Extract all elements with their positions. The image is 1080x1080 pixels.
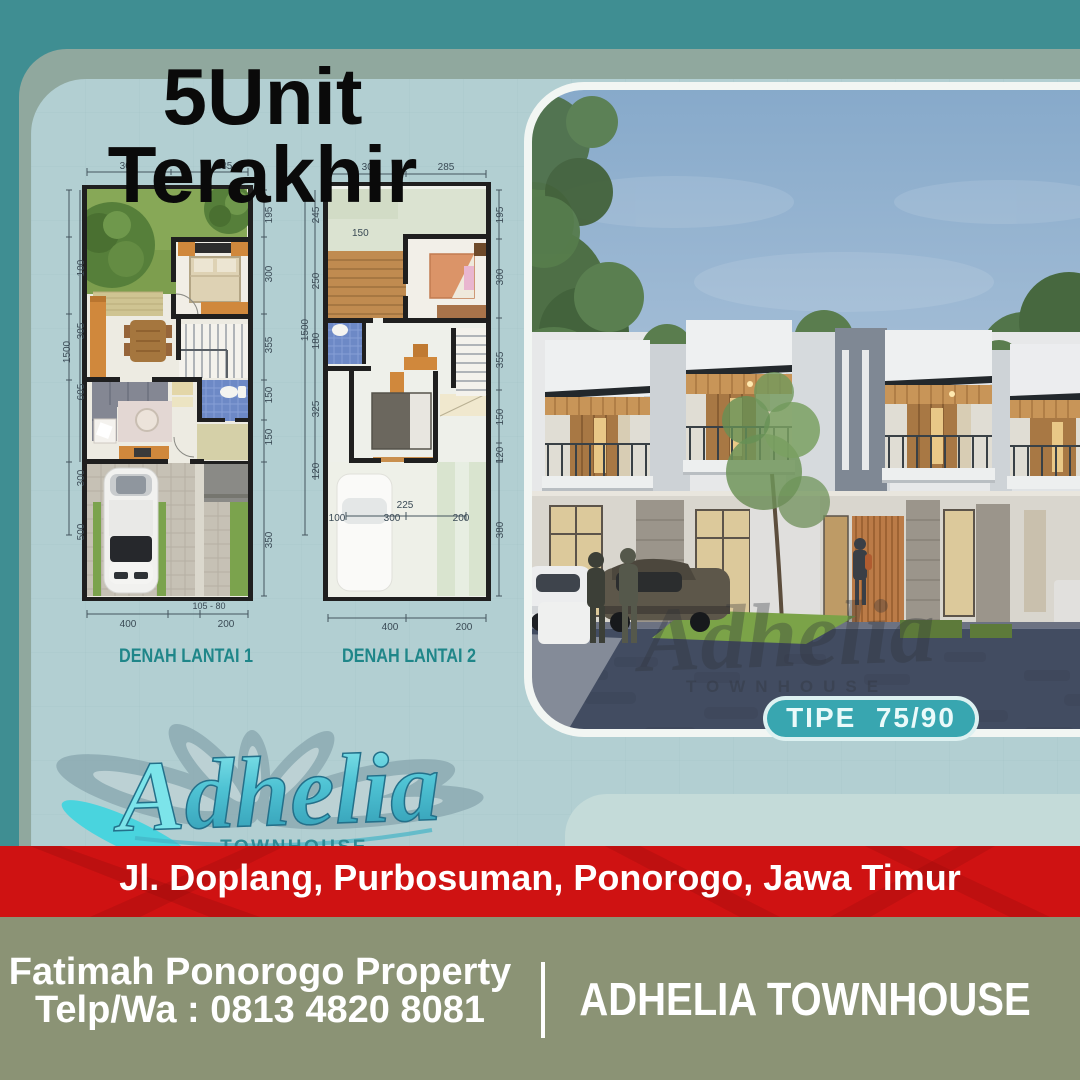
svg-text:605: 605 — [76, 383, 87, 400]
svg-text:400: 400 — [120, 619, 137, 630]
svg-text:200: 200 — [456, 622, 473, 633]
svg-text:1500: 1500 — [300, 318, 311, 341]
svg-text:380: 380 — [495, 521, 506, 538]
svg-text:Adhelia: Adhelia — [632, 579, 937, 691]
svg-text:300: 300 — [384, 513, 401, 524]
svg-text:180: 180 — [311, 332, 322, 349]
svg-text:400: 400 — [382, 622, 399, 633]
svg-text:300: 300 — [76, 469, 87, 486]
svg-text:1500: 1500 — [62, 340, 73, 363]
svg-text:305: 305 — [76, 322, 87, 339]
svg-text:200: 200 — [218, 619, 235, 630]
svg-text:TOWNHOUSE: TOWNHOUSE — [686, 677, 888, 696]
svg-text:100: 100 — [329, 513, 346, 524]
svg-text:350: 350 — [264, 531, 275, 548]
svg-text:150: 150 — [264, 428, 275, 445]
svg-text:120: 120 — [495, 446, 506, 463]
svg-text:150: 150 — [264, 386, 275, 403]
svg-text:300: 300 — [264, 265, 275, 282]
svg-text:355: 355 — [264, 336, 275, 353]
svg-text:325: 325 — [311, 400, 322, 417]
svg-text:300: 300 — [495, 268, 506, 285]
svg-text:120: 120 — [311, 462, 322, 479]
svg-text:105 - 80: 105 - 80 — [192, 601, 225, 611]
svg-text:355: 355 — [495, 351, 506, 368]
svg-text:200: 200 — [453, 513, 470, 524]
svg-text:500: 500 — [76, 523, 87, 540]
svg-text:150: 150 — [495, 408, 506, 425]
svg-text:100: 100 — [76, 259, 87, 276]
svg-text:225: 225 — [397, 500, 414, 511]
svg-text:250: 250 — [311, 272, 322, 289]
svg-text:150: 150 — [352, 228, 369, 239]
